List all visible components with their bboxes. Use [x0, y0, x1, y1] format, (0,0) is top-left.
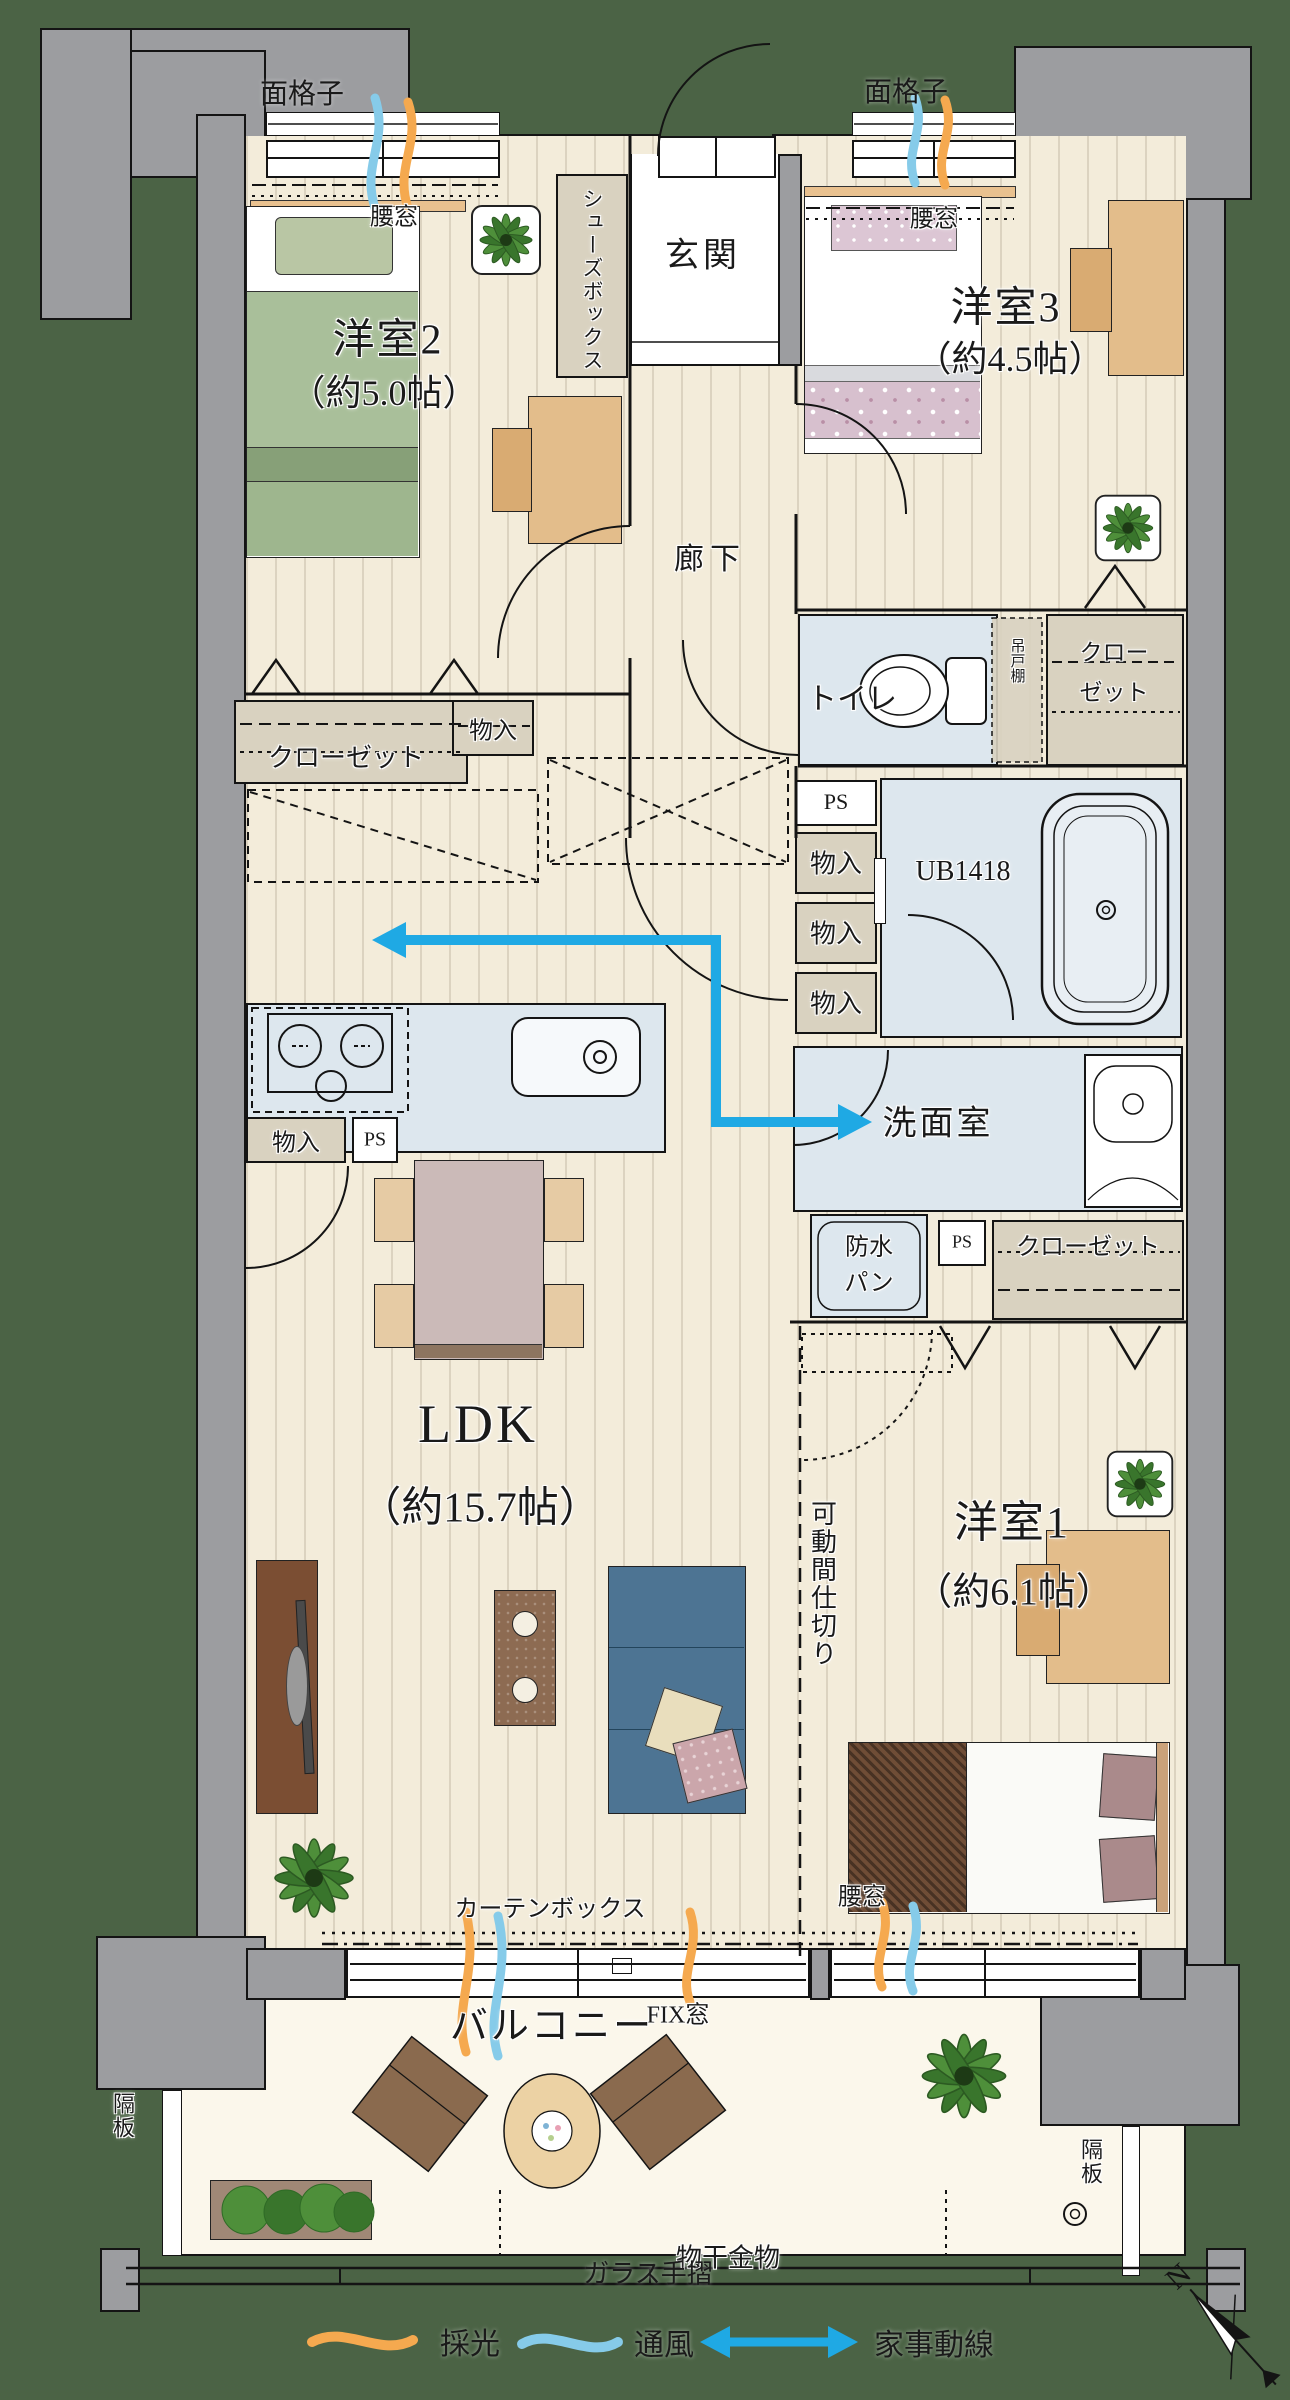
- wall-right: [1186, 198, 1226, 1966]
- label-mengoushi-left: 面格子: [260, 72, 344, 112]
- label-glass-tesuri: ガラス手摺: [583, 2254, 712, 2291]
- label-koshimado-y2: 腰窓: [370, 197, 418, 232]
- bed-y3-floral: [805, 381, 980, 439]
- dining-chair-3: [544, 1178, 584, 1242]
- label-kakuita-right: 隔板: [1074, 2138, 1106, 2186]
- wall-top-left-column: [40, 28, 132, 320]
- label-fix-mado: FIX窓: [647, 1995, 710, 2030]
- balcony-partition-right: [1122, 2126, 1140, 2276]
- label-ldk-name: LDK: [418, 1393, 538, 1455]
- wall-bottom-left-stub: [246, 1948, 346, 2000]
- label-closet-y1: クローゼット: [1016, 1227, 1160, 1262]
- compass-north-label: N: [1159, 2257, 1197, 2296]
- desk-y2: [528, 396, 622, 544]
- label-senmenshitsu: 洗面室: [883, 1096, 994, 1145]
- label-youshitsu3-name: 洋室3: [950, 274, 1061, 335]
- bed-y1-headboard: [1156, 1743, 1168, 1912]
- label-monoiri-1: 物入: [810, 844, 862, 881]
- window-grille-y2: [266, 112, 500, 136]
- label-closet-y3-line2: ゼット: [1080, 673, 1149, 707]
- wall-left: [196, 114, 246, 1966]
- label-youshitsu2-size: （約5.0帖）: [289, 364, 478, 416]
- legend-symbols: [312, 2326, 858, 2358]
- entrance-door-band: [658, 136, 776, 178]
- legend-ventilation-label: 通風: [634, 2320, 694, 2364]
- sofa-cushion-2: [672, 1728, 747, 1803]
- legend-daylight-label: 採光: [440, 2319, 500, 2363]
- label-kadou-majikiri: 可動間仕切り: [804, 1500, 841, 1668]
- label-bousuipan-line1: 防水: [845, 1227, 893, 1262]
- label-youshitsu1-size: （約6.1帖）: [914, 1561, 1114, 1616]
- label-kakuita-left: 隔板: [106, 2092, 138, 2140]
- dining-chair-1: [374, 1178, 414, 1242]
- bed-y2-band: [247, 447, 418, 482]
- label-rouka: 廊下: [674, 534, 746, 578]
- bed-y1-pillow-1: [1099, 1753, 1159, 1821]
- dining-table: [414, 1160, 544, 1360]
- window-y2: [266, 140, 500, 178]
- coffee-cup-2: [512, 1677, 538, 1703]
- bed-y1: [848, 1742, 1170, 1914]
- bed-y2-foot: [247, 482, 418, 556]
- window-ldk: [346, 1948, 810, 1998]
- label-youshitsu3-size: （約4.5帖）: [915, 330, 1104, 382]
- bed-y1-pillow-2: [1099, 1835, 1159, 1903]
- label-balcony: バルコニー: [450, 1995, 654, 2050]
- label-ps-mid: PS: [824, 789, 848, 815]
- railing-post-right: [1206, 2248, 1246, 2312]
- dining-chair-4: [544, 1284, 584, 1348]
- dining-table-edge: [415, 1344, 542, 1358]
- label-genkan: 玄関: [665, 228, 741, 277]
- chair-y3: [1070, 248, 1112, 332]
- label-curtain-box: カーテンボックス: [454, 1889, 645, 1924]
- label-toilet: トイレ: [807, 674, 897, 718]
- wall-bottom-right-stub: [1140, 1948, 1186, 2000]
- fix-window-handle: [612, 1958, 632, 1974]
- label-ldk-size: （約15.7帖）: [359, 1474, 601, 1535]
- legend-housework-label: 家事動線: [874, 2320, 994, 2364]
- label-shoes-box: シューズボックス: [577, 188, 607, 372]
- balcony-partition-left: [162, 2090, 182, 2256]
- label-closet-y3-line1: クロー: [1080, 633, 1149, 667]
- window-y3: [852, 140, 1016, 178]
- window-grille-y3: [852, 112, 1016, 136]
- label-closet-y2: クローゼット: [268, 738, 424, 775]
- label-tsuridotana: 吊戸棚: [1007, 638, 1028, 683]
- coffee-table: [494, 1590, 556, 1726]
- label-ps-senmen: PS: [952, 1232, 972, 1253]
- wall-bottom-mid-stub: [810, 1948, 830, 2000]
- label-koshimado-y3: 腰窓: [910, 199, 958, 234]
- wall-balcony-left-block: [96, 1936, 266, 2090]
- balcony-planter: [210, 2180, 372, 2240]
- label-youshitsu2-name: 洋室2: [332, 306, 443, 367]
- window-y1: [830, 1948, 1140, 1998]
- label-monoiri-2: 物入: [810, 914, 862, 951]
- coffee-cup-1: [512, 1611, 538, 1637]
- label-mengoushi-right: 面格子: [864, 70, 948, 110]
- label-koshimado-y1: 腰窓: [838, 1877, 886, 1912]
- dining-chair-2: [374, 1284, 414, 1348]
- label-monoiri-y2: 物入: [469, 711, 517, 746]
- label-monoiri-kitchen: 物入: [272, 1123, 320, 1158]
- railing-post-left: [100, 2248, 140, 2312]
- label-ps-kitchen: PS: [364, 1129, 386, 1152]
- vanity: [1084, 1054, 1182, 1208]
- tv-stand: [286, 1646, 308, 1726]
- sofa-seat-line-1: [609, 1647, 744, 1648]
- label-youshitsu1-name: 洋室1: [954, 1486, 1070, 1550]
- floor-plan: N 面格子 面格子 腰窓 腰窓 腰窓 シューズボックス 玄関 洋室2 （約5.0…: [0, 0, 1290, 2400]
- wall-genkan-right: [778, 154, 802, 366]
- desk-y3: [1108, 200, 1184, 376]
- ub-door-step: [874, 858, 886, 924]
- chair-y2: [492, 428, 532, 512]
- label-ub1418: UB1418: [916, 856, 1011, 888]
- label-bousuipan-line2: パン: [844, 1263, 893, 1298]
- label-monoiri-3: 物入: [810, 984, 862, 1021]
- unit-bath-room: [880, 778, 1182, 1038]
- sofa: [608, 1566, 746, 1814]
